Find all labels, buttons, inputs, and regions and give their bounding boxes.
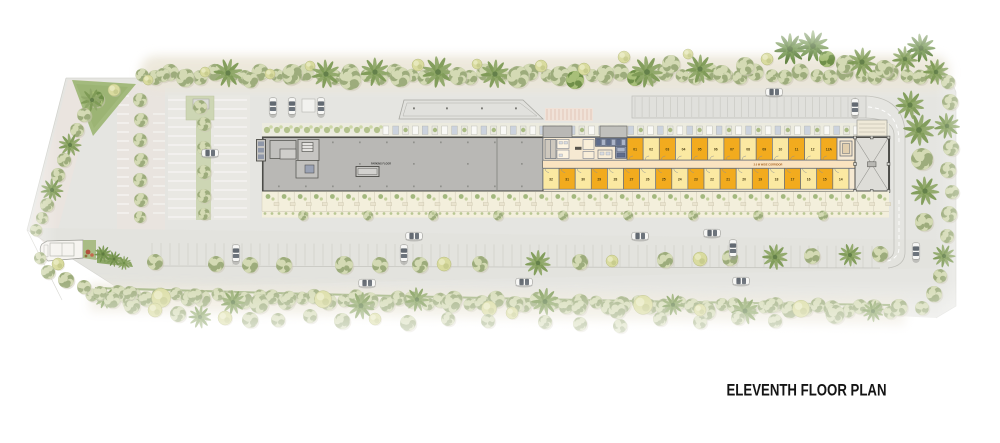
svg-text:05: 05 xyxy=(698,147,702,151)
svg-text:03: 03 xyxy=(666,147,670,151)
svg-text:17: 17 xyxy=(791,178,795,182)
svg-text:26: 26 xyxy=(646,178,650,182)
svg-text:11: 11 xyxy=(795,147,799,151)
svg-text:20: 20 xyxy=(742,178,746,182)
svg-text:28: 28 xyxy=(614,178,618,182)
svg-text:23: 23 xyxy=(694,178,698,182)
svg-text:15: 15 xyxy=(823,178,827,182)
svg-text:27: 27 xyxy=(630,178,634,182)
svg-text:09: 09 xyxy=(762,147,766,151)
svg-text:01: 01 xyxy=(633,147,637,151)
svg-text:14: 14 xyxy=(839,178,843,182)
svg-text:32: 32 xyxy=(549,178,553,182)
svg-text:12: 12 xyxy=(811,147,815,151)
svg-text:04: 04 xyxy=(682,147,686,151)
svg-text:22: 22 xyxy=(710,178,714,182)
svg-text:30: 30 xyxy=(581,178,585,182)
svg-text:21: 21 xyxy=(726,178,730,182)
svg-text:06: 06 xyxy=(714,147,718,151)
svg-text:12A: 12A xyxy=(826,147,833,151)
svg-text:24: 24 xyxy=(678,178,682,182)
svg-text:2.0 M WIDE CORRIDOR: 2.0 M WIDE CORRIDOR xyxy=(754,163,783,167)
svg-text:ELEVENTH FLOOR PLAN: ELEVENTH FLOOR PLAN xyxy=(727,382,887,400)
svg-text:29: 29 xyxy=(597,178,601,182)
svg-text:07: 07 xyxy=(730,147,734,151)
svg-text:10: 10 xyxy=(779,147,783,151)
svg-text:19: 19 xyxy=(758,178,762,182)
svg-text:PARKING FLOOR: PARKING FLOOR xyxy=(371,162,391,165)
svg-text:18: 18 xyxy=(775,178,779,182)
svg-text:08: 08 xyxy=(746,147,750,151)
svg-text:16: 16 xyxy=(807,178,811,182)
svg-text:25: 25 xyxy=(662,178,666,182)
svg-text:02: 02 xyxy=(649,147,653,151)
svg-text:31: 31 xyxy=(565,178,569,182)
